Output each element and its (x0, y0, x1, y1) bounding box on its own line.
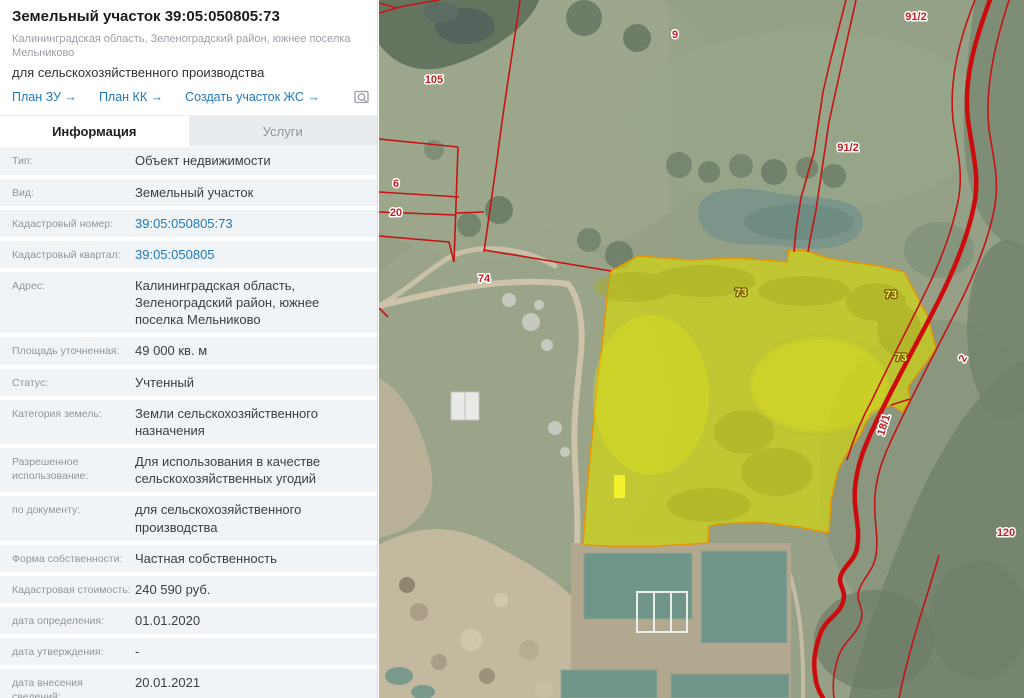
info-row-value-link[interactable]: 39:05:050805:73 (134, 215, 369, 232)
info-row: Площадь уточненная:49 000 кв. м (0, 337, 377, 364)
info-row-value: Частная собственность (134, 550, 369, 567)
info-row-label: дата внесения сведений: (12, 674, 134, 698)
info-row-value: Калининградская область, Зеленоградский … (134, 277, 369, 328)
info-row-value: - (134, 643, 369, 660)
info-row-value: Для использования в качестве сельскохозя… (134, 453, 369, 487)
parcel-label-91-2[interactable]: 91/2 (837, 142, 858, 154)
tab-услуги[interactable]: Услуги (189, 116, 378, 146)
info-row-label: по документу: (12, 501, 134, 535)
info-row-value: для сельскохозяйственного производства (134, 501, 369, 535)
info-row: дата внесения сведений:20.01.2021 (0, 669, 377, 698)
parcel-usage-text: для сельскохозяйственного производства (12, 65, 365, 80)
parcel-info-panel: Земельный участок 39:05:050805:73 Калини… (0, 0, 378, 698)
parcel-label-9[interactable]: 9 (672, 29, 678, 41)
parcel-address-subtitle: Калининградская область, Зеленоградский … (12, 32, 365, 61)
info-row: Кадастровая стоимость:240 590 руб. (0, 576, 377, 603)
info-row-label: Статус: (12, 374, 134, 391)
tab-информация[interactable]: Информация (0, 116, 189, 146)
plan-link-0[interactable]: План ЗУ → (12, 90, 77, 104)
info-row: Разрешенное использование:Для использова… (0, 448, 377, 492)
info-row-label: Форма собственности: (12, 550, 134, 567)
info-row-value: Земли сельскохозяйственного назначения (134, 405, 369, 439)
parcel-label-91-2[interactable]: 91/2 (905, 11, 926, 23)
info-row: Категория земель:Земли сельскохозяйствен… (0, 400, 377, 444)
info-row: Форма собственности:Частная собственност… (0, 545, 377, 572)
parcel-field-oval (749, 337, 889, 433)
info-row: дата утверждения:- (0, 638, 377, 665)
parcel-label-73[interactable]: 73 (885, 289, 897, 301)
info-row: Адрес:Калининградская область, Зеленогра… (0, 272, 377, 333)
parcel-label-105[interactable]: 105 (425, 74, 443, 86)
info-row-value: 240 590 руб. (134, 581, 369, 598)
parcel-label-74[interactable]: 74 (478, 273, 491, 285)
info-row-value: 49 000 кв. м (134, 342, 369, 359)
info-row-label: Кадастровый номер: (12, 215, 134, 232)
info-row-value: Земельный участок (134, 184, 369, 201)
parcel-label-120[interactable]: 120 (997, 527, 1015, 539)
panel-header: Земельный участок 39:05:050805:73 Калини… (0, 0, 377, 115)
parcel-label-73[interactable]: 73 (735, 287, 747, 299)
info-row: по документу:для сельскохозяйственного п… (0, 496, 377, 540)
info-row: Вид:Земельный участок (0, 179, 377, 206)
parcel-attributes-list: Тип:Объект недвижимостиВид:Земельный уча… (0, 147, 377, 698)
info-row-value: Учтенный (134, 374, 369, 391)
info-row-label: Тип: (12, 152, 134, 169)
info-row-value-link[interactable]: 39:05:050805 (134, 246, 369, 263)
preview-document-icon[interactable] (354, 90, 371, 105)
plan-link-2[interactable]: Создать участок ЖС → (185, 90, 320, 104)
info-row: Тип:Объект недвижимости (0, 147, 377, 174)
info-row-label: Кадастровая стоимость: (12, 581, 134, 598)
info-row-label: Разрешенное использование: (12, 453, 134, 487)
info-row-value: Объект недвижимости (134, 152, 369, 169)
plan-link-1[interactable]: План КК → (99, 90, 163, 104)
info-row-label: Площадь уточненная: (12, 342, 134, 359)
plan-links-row: План ЗУ →План КК →Создать участок ЖС → ☆ (12, 88, 365, 115)
panel-tabs: ИнформацияУслуги (0, 115, 377, 146)
info-row-label: Кадастровый квартал: (12, 246, 134, 263)
info-row-label: дата определения: (12, 612, 134, 629)
plan-links: План ЗУ →План КК →Создать участок ЖС → (12, 88, 342, 106)
info-row: Статус:Учтенный (0, 369, 377, 396)
info-row-value: 20.01.2021 (134, 674, 369, 698)
info-row: Кадастровый номер:39:05:050805:73 (0, 210, 377, 237)
info-row: Кадастровый квартал:39:05:050805 (0, 241, 377, 268)
parcel-label-73[interactable]: 73 (895, 352, 907, 364)
white-building (451, 392, 479, 420)
info-row: дата определения:01.01.2020 (0, 607, 377, 634)
parcel-title: Земельный участок 39:05:050805:73 (12, 8, 365, 27)
info-row-label: дата утверждения: (12, 643, 134, 660)
info-row-label: Адрес: (12, 277, 134, 328)
parcel-field-left (593, 315, 709, 475)
info-row-value: 01.01.2020 (134, 612, 369, 629)
parcel-label-20[interactable]: 20 (390, 207, 402, 219)
info-row-label: Категория земель: (12, 405, 134, 439)
map-viewport[interactable]: 991/291/210562074120218/1737373 (379, 0, 1024, 698)
parcel-label-6[interactable]: 6 (393, 178, 399, 190)
cadastral-map-app: Земельный участок 39:05:050805:73 Калини… (0, 0, 1024, 698)
info-row-label: Вид: (12, 184, 134, 201)
parcel-shed (614, 475, 625, 498)
